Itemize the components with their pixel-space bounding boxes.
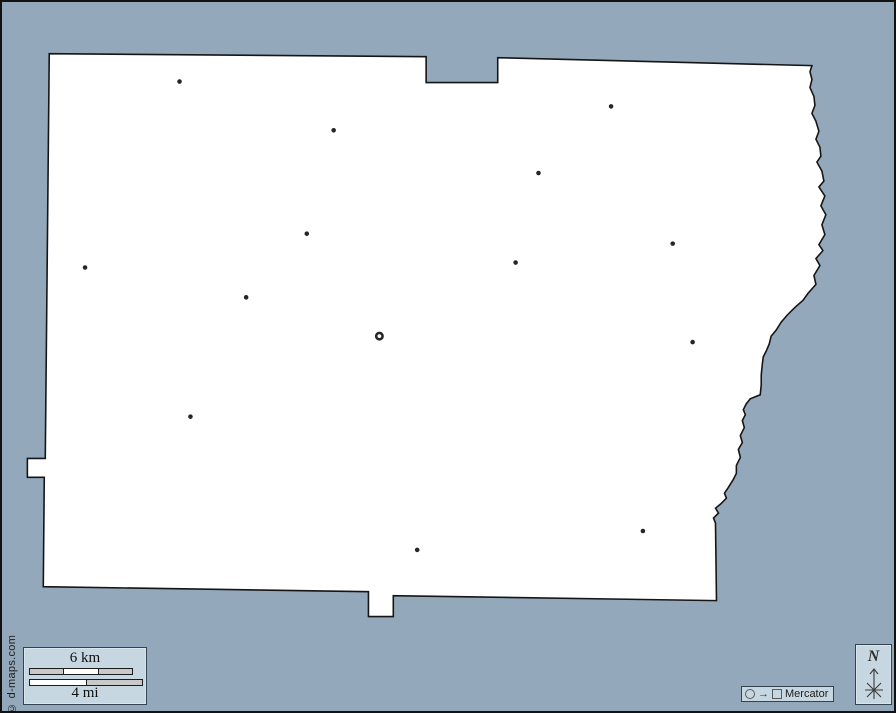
scale-km-segment: [98, 669, 132, 674]
town-dot: [331, 128, 336, 133]
scale-km-label: 6 km: [24, 651, 146, 666]
town-dot: [244, 295, 249, 300]
projection-name: Mercator: [785, 688, 828, 700]
dmaps-credit: © d-maps.com: [4, 630, 20, 713]
globe-circle-icon: [745, 689, 755, 699]
town-dot: [188, 414, 193, 419]
map-square-icon: [772, 689, 782, 699]
town-dot: [641, 529, 646, 534]
town-dot: [609, 104, 614, 109]
north-indicator: N: [855, 644, 892, 705]
town-dot: [415, 548, 420, 553]
town-dot: [83, 265, 88, 270]
scale-mi-label: 4 mi: [24, 686, 146, 701]
scale-km-bar: [29, 668, 133, 675]
town-dot: [177, 79, 182, 84]
projection-arrow-icon: →: [758, 689, 769, 699]
scale-km-segment: [30, 669, 63, 674]
town-dot: [305, 231, 310, 236]
scale-km-segment: [63, 669, 97, 674]
town-dot: [536, 171, 541, 176]
projection-badge: → Mercator: [741, 686, 834, 702]
county-outline-map: [2, 2, 894, 711]
county-seat-ring: [376, 333, 382, 339]
north-label: N: [856, 648, 891, 665]
town-dot: [513, 260, 518, 265]
scale-bar: 6 km 4 mi: [23, 647, 147, 705]
compass-arrow-icon: [861, 666, 887, 700]
map-canvas: © d-maps.com 6 km 4 mi → Mercator N: [0, 0, 896, 713]
town-dot: [670, 241, 675, 246]
town-dot: [690, 340, 695, 345]
county-boundary: [27, 54, 825, 617]
